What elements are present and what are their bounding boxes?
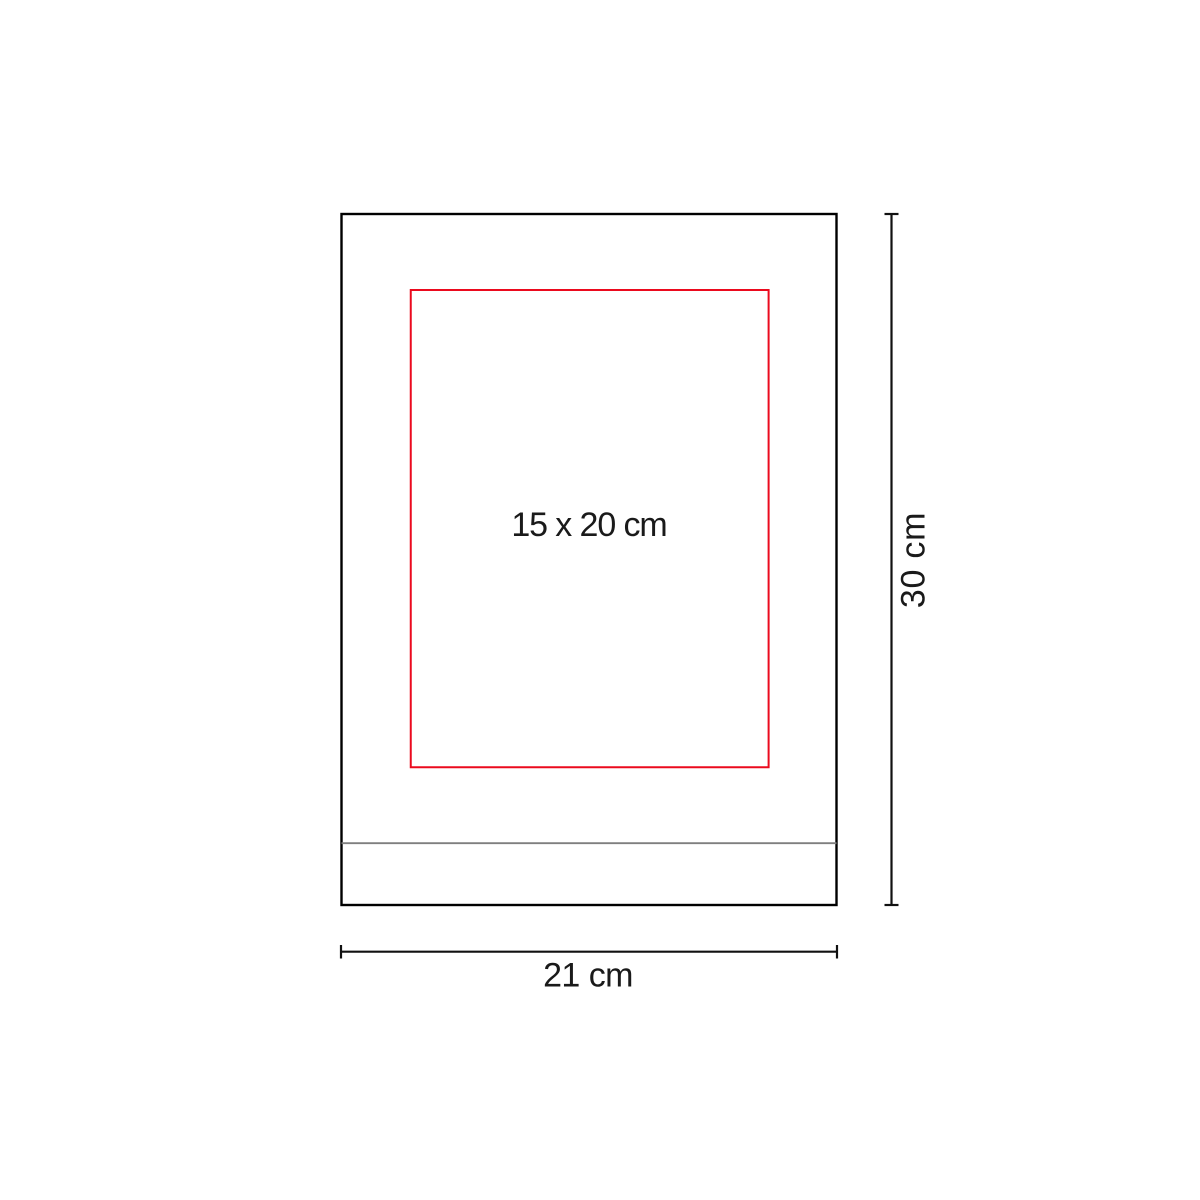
svg-text:21 cm: 21 cm: [543, 957, 633, 995]
svg-text:15 x 20 cm: 15 x 20 cm: [511, 506, 666, 544]
svg-text:30 cm: 30 cm: [894, 512, 932, 608]
